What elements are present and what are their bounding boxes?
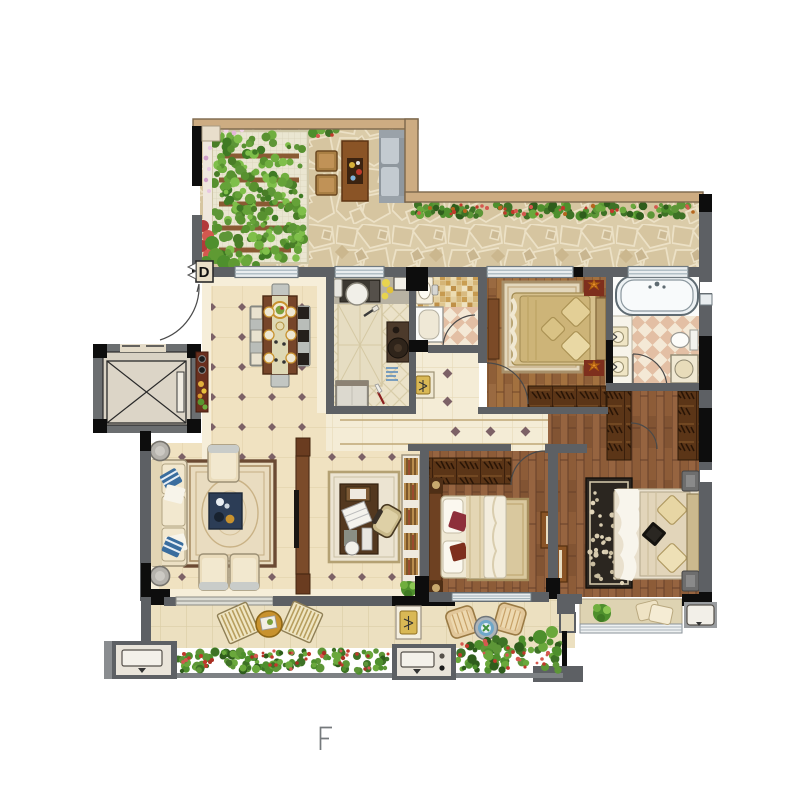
svg-text:D: D — [199, 264, 210, 281]
